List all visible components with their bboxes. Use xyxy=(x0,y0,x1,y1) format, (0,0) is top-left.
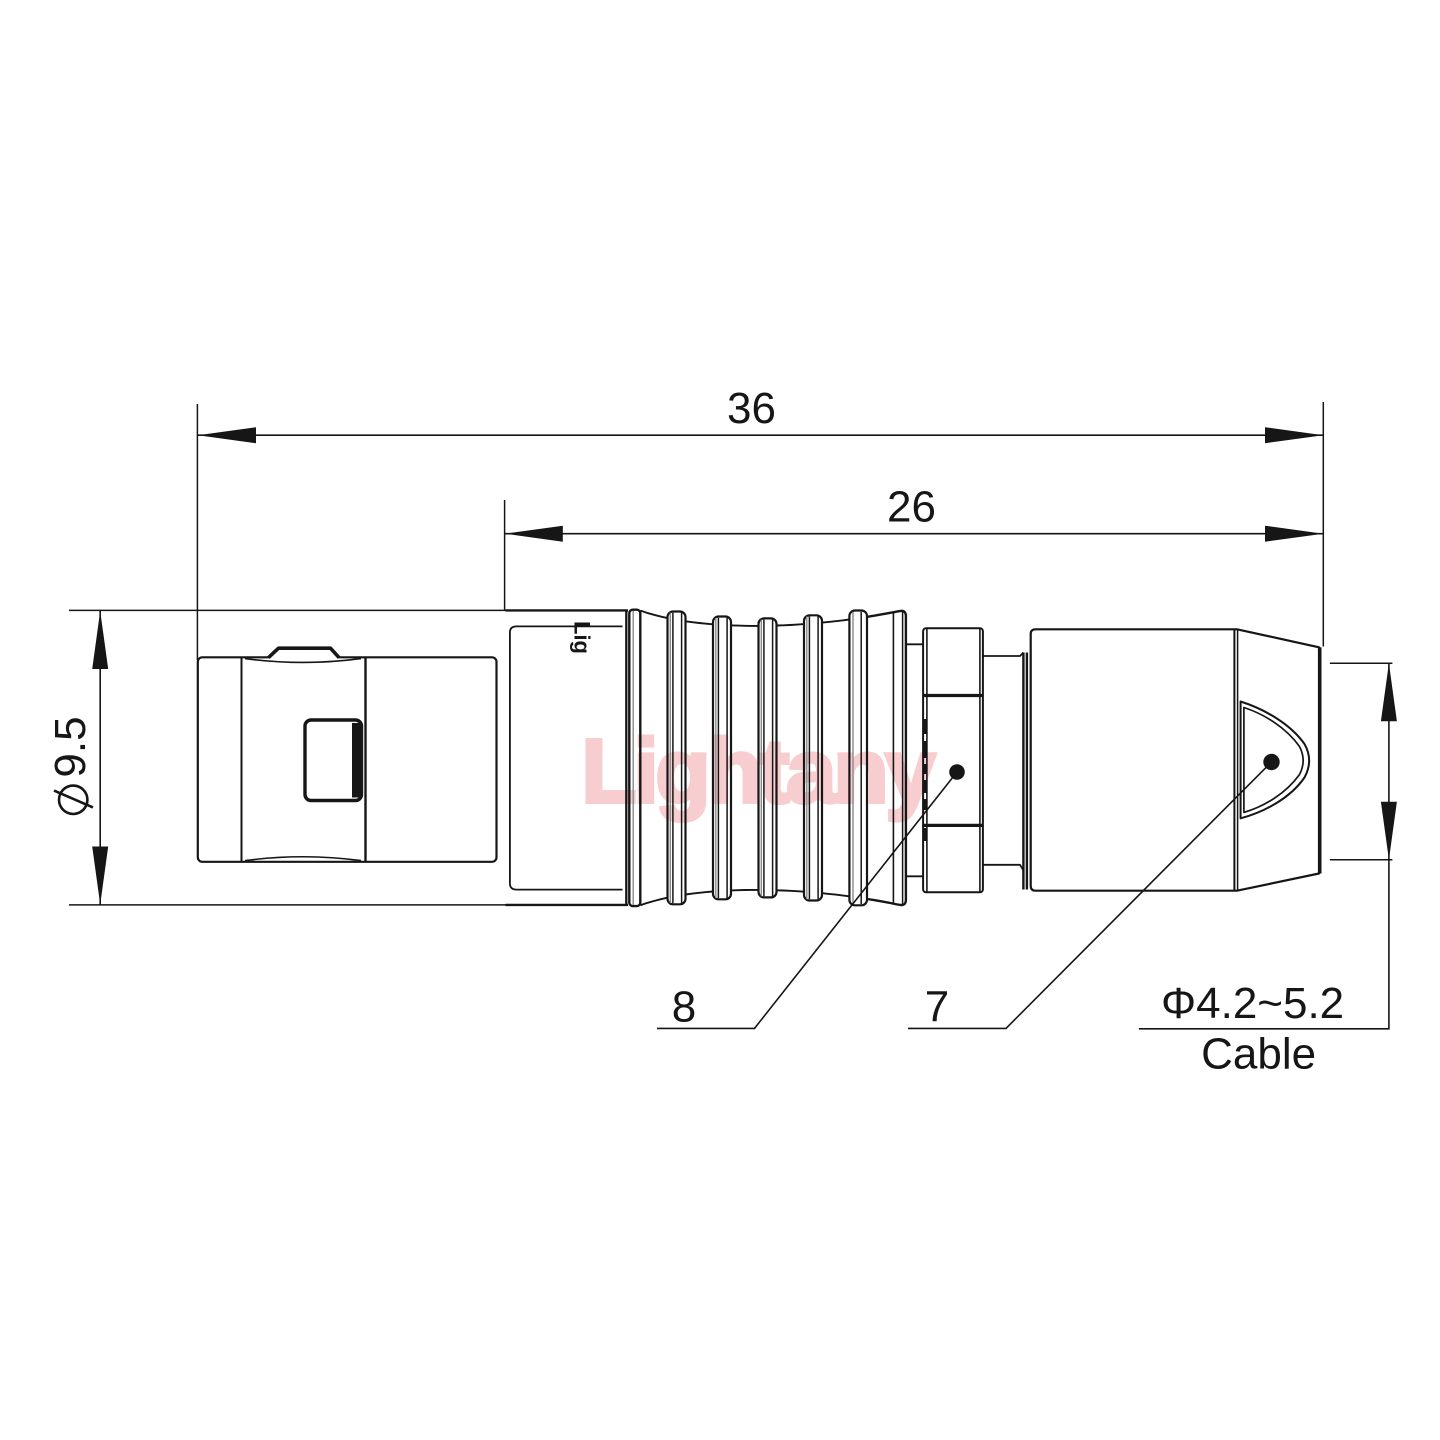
svg-text:8: 8 xyxy=(672,983,696,1032)
svg-text:Lig: Lig xyxy=(570,621,595,654)
svg-text:36: 36 xyxy=(727,384,776,433)
svg-text:26: 26 xyxy=(887,483,936,532)
svg-text:9.5: 9.5 xyxy=(46,716,95,777)
svg-text:Φ4.2~5.2: Φ4.2~5.2 xyxy=(1161,979,1344,1028)
svg-text:Cable: Cable xyxy=(1201,1030,1316,1079)
svg-text:7: 7 xyxy=(925,983,949,1032)
